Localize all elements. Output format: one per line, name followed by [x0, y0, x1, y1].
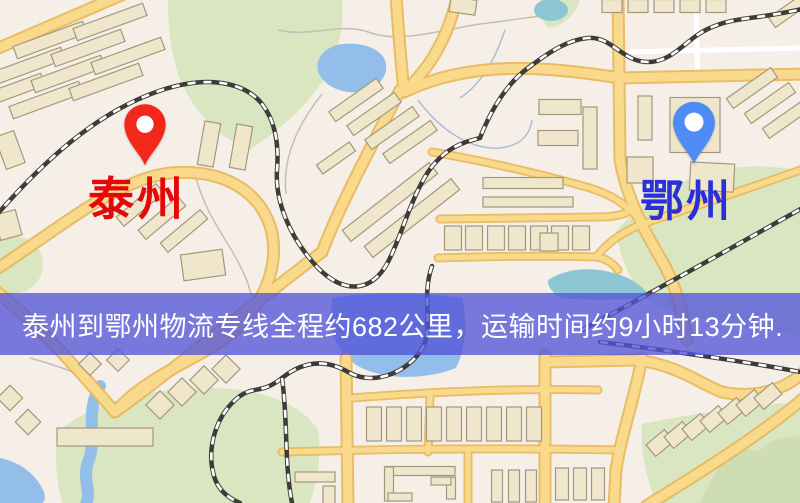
map-canvas[interactable]: 泰州到鄂州物流专线全程约682公里，运输时间约9小时13分钟. 泰州 鄂州: [0, 0, 800, 503]
origin-label: 泰州: [88, 177, 186, 223]
red-map-pin-icon: [121, 101, 169, 171]
destination-label: 鄂州: [640, 180, 732, 224]
blue-map-pin-icon: [669, 100, 719, 168]
route-info-banner: 泰州到鄂州物流专线全程约682公里，运输时间约9小时13分钟.: [0, 293, 800, 355]
map-background: [0, 0, 800, 503]
destination-pin[interactable]: [669, 100, 719, 168]
origin-pin[interactable]: [121, 101, 169, 171]
route-info-text: 泰州到鄂州物流专线全程约682公里，运输时间约9小时13分钟.: [22, 305, 783, 344]
